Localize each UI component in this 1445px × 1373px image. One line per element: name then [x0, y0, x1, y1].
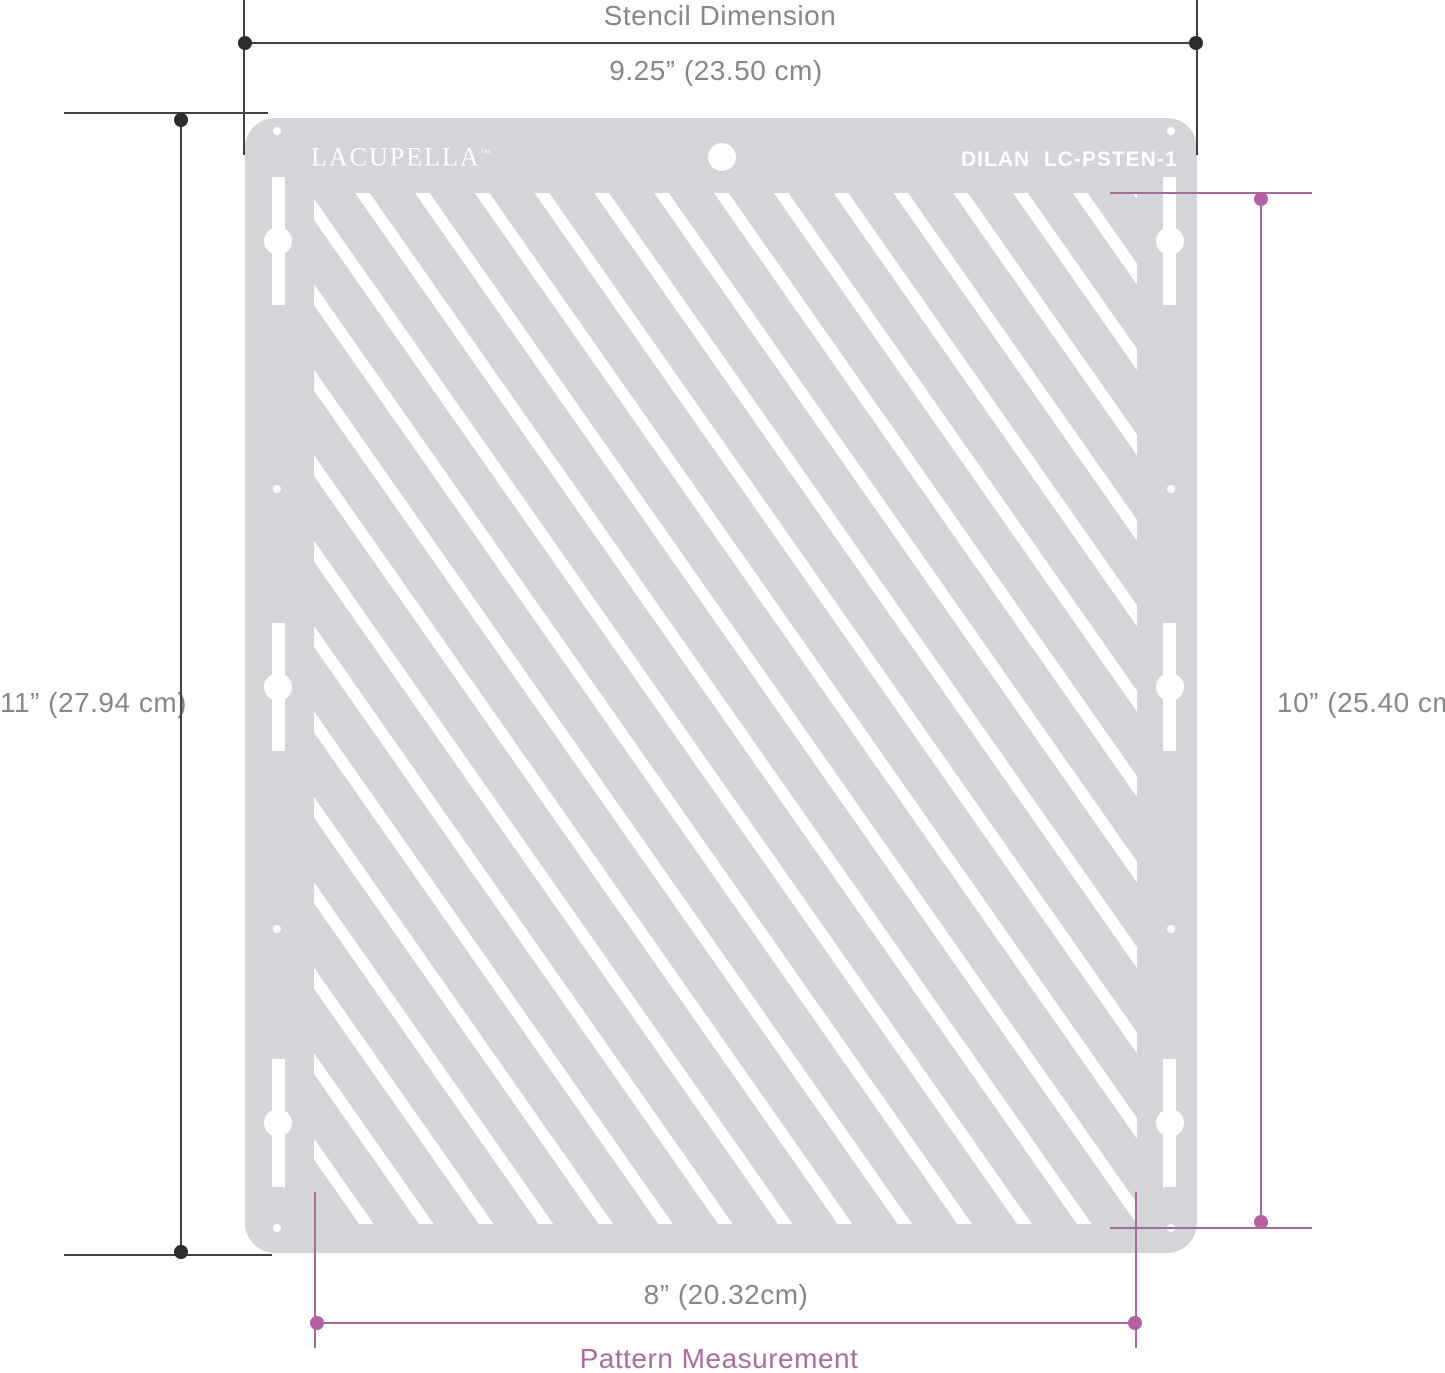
- diagonal-stripe-pattern: [314, 193, 1137, 1224]
- dimension-endpoint-dot: [174, 1245, 188, 1259]
- bottom-dimension-line: [316, 1322, 1136, 1324]
- dimension-endpoint-dot: [310, 1316, 324, 1330]
- right-extension-line-top: [1110, 192, 1312, 194]
- hanger-hole: [708, 143, 736, 171]
- right-dimension-line: [1260, 198, 1262, 1223]
- brand-logo: LACUPELLA™: [311, 139, 490, 173]
- alignment-dot: [1167, 485, 1175, 493]
- stencil-dimension-diagram: Stencil Dimension 9.25” (23.50 cm) 11” (…: [0, 0, 1445, 1373]
- bottom-dimension-value: 8” (20.32cm): [426, 1279, 1026, 1311]
- left-dimension-value: 11” (27.94 cm): [0, 687, 172, 719]
- top-extension-line-left: [243, 0, 245, 155]
- trademark-symbol: ™: [481, 148, 491, 159]
- dimension-endpoint-dot: [1254, 192, 1268, 206]
- left-dimension-line: [180, 120, 182, 1252]
- left-extension-line-top: [64, 112, 268, 114]
- top-dimension-line: [244, 42, 1197, 44]
- alignment-dot: [273, 925, 281, 933]
- right-extension-line-bottom: [1110, 1227, 1312, 1229]
- top-extension-line-right: [1196, 0, 1198, 155]
- alignment-dot: [1167, 127, 1175, 135]
- stencil: LACUPELLA™ DILAN LC-PSTEN-1: [245, 118, 1197, 1253]
- alignment-dot: [273, 485, 281, 493]
- dimension-endpoint-dot: [1254, 1215, 1268, 1229]
- dimension-endpoint-dot: [174, 113, 188, 127]
- right-dimension-value: 10” (25.40 cm): [1277, 687, 1445, 719]
- bottom-dimension-label: Pattern Measurement: [419, 1343, 1019, 1373]
- alignment-dot: [273, 1224, 281, 1232]
- model-code: DILAN LC-PSTEN-1: [961, 148, 1178, 172]
- alignment-dot: [1167, 925, 1175, 933]
- dimension-endpoint-dot: [1189, 36, 1203, 50]
- left-extension-line-bottom: [64, 1254, 272, 1256]
- brand-name: LACUPELLA: [311, 143, 481, 172]
- top-dimension-value: 9.25” (23.50 cm): [416, 55, 1016, 87]
- dimension-endpoint-dot: [238, 36, 252, 50]
- alignment-dot: [273, 127, 281, 135]
- dimension-endpoint-dot: [1128, 1316, 1142, 1330]
- top-dimension-label: Stencil Dimension: [420, 0, 1020, 32]
